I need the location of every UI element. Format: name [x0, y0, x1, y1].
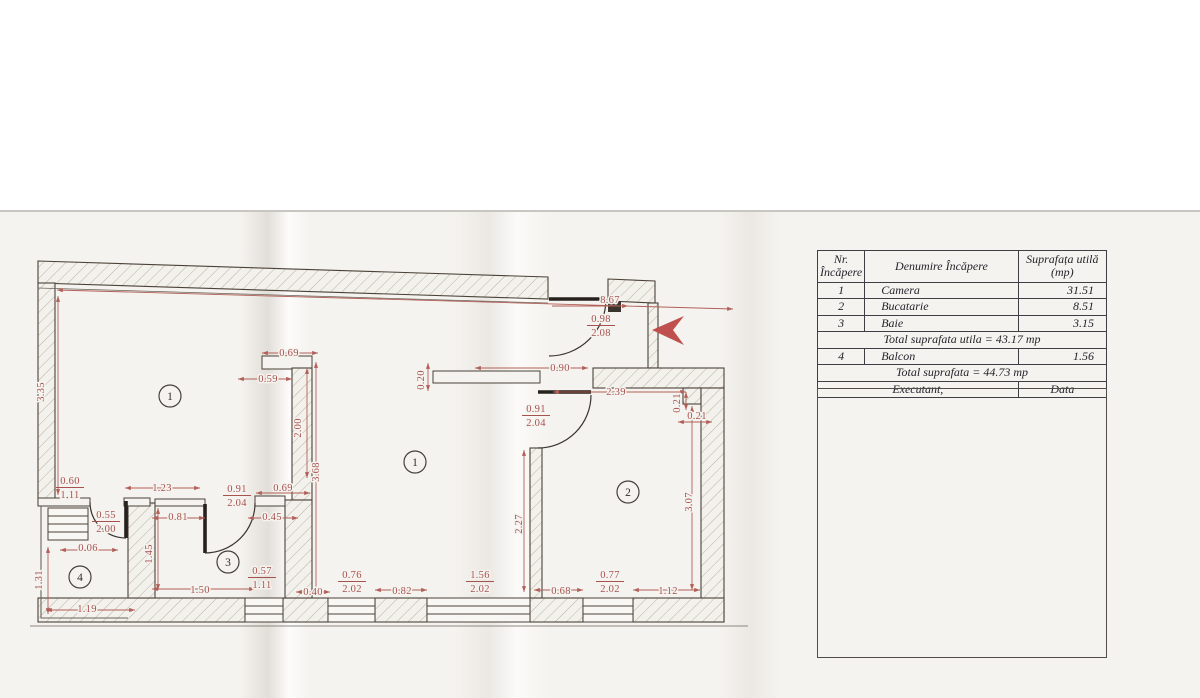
svg-text:0.77: 0.77 [600, 570, 620, 581]
svg-text:1.56: 1.56 [470, 570, 490, 581]
room-area: 8.51 [1018, 299, 1106, 315]
total-usable-row: Total suprafata utila = 43.17 mp [818, 332, 1107, 348]
total-all-label: Total suprafata = 44.73 mp [818, 365, 1107, 381]
room-nr: 2 [818, 299, 865, 315]
room-number-badge: 2 [617, 481, 639, 503]
svg-text:1.11: 1.11 [60, 490, 79, 501]
svg-text:3: 3 [225, 557, 231, 569]
room-name: Balcon [865, 348, 1018, 364]
room-number-badge: 1 [404, 451, 426, 473]
room-nr: 3 [818, 315, 865, 331]
room-name: Bucatarie [865, 299, 1018, 315]
header-name: Denumire Încăpere [865, 251, 1018, 283]
svg-text:0.55: 0.55 [96, 510, 116, 521]
svg-text:2: 2 [625, 487, 631, 499]
table-row: 2 Bucatarie 8.51 [818, 299, 1107, 315]
dimension-fraction-label: 0.912.04 [223, 484, 251, 509]
dimension-label: 2.27 [514, 514, 525, 534]
svg-text:4: 4 [77, 572, 83, 584]
dimension-fraction-label: 0.571.11 [248, 566, 276, 591]
svg-text:0.91: 0.91 [526, 404, 546, 415]
table-row: 4 Balcon 1.56 [818, 348, 1107, 364]
dimension-label: 0.82 [392, 586, 412, 597]
room-area: 31.51 [1018, 282, 1106, 298]
svg-text:0.60: 0.60 [60, 476, 80, 487]
dimension-label: 0.81 [168, 512, 188, 523]
dimension-label: 3.68 [311, 462, 322, 482]
svg-text:1: 1 [412, 457, 418, 469]
scanned-floorplan-page: 8.673.350.690.592.003.680.900.202.390.21… [0, 0, 1200, 698]
total-all-row: Total suprafata = 44.73 mp [818, 365, 1107, 381]
dimension-label: 0.69 [273, 483, 293, 494]
room-number-badge: 3 [217, 551, 239, 573]
dimension-label: 0.69 [279, 348, 299, 359]
svg-text:1.11: 1.11 [252, 580, 271, 591]
dimension-label: 0.06 [78, 543, 98, 554]
dimension-fraction-label: 1.562.02 [466, 570, 494, 595]
room-name: Baie [865, 315, 1018, 331]
dimension-label: 0.20 [416, 370, 427, 390]
dimension-label: 0.59 [258, 374, 278, 385]
svg-text:0.98: 0.98 [591, 314, 611, 325]
room-area: 3.15 [1018, 315, 1106, 331]
dimension-label: 0.68 [551, 586, 571, 597]
dimension-fraction-label: 0.772.02 [596, 570, 624, 595]
room-nr: 4 [818, 348, 865, 364]
dimension-fraction-label: 0.601.11 [56, 476, 84, 501]
dimension-fraction-label: 0.912.04 [522, 404, 550, 429]
svg-text:2.08: 2.08 [591, 328, 611, 339]
dimension-label: 2.39 [606, 387, 626, 398]
dimension-label: 2.00 [293, 418, 304, 438]
header-area: Suprafața utilă (mp) [1018, 251, 1106, 283]
header-nr: Nr. Încăpere [818, 251, 865, 283]
executant-signature-box [817, 388, 1107, 658]
dimension-label: 1.23 [152, 483, 172, 494]
dimension-label: 1.19 [77, 604, 97, 615]
dimension-label: 0.90 [550, 363, 570, 374]
dimension-fraction-label: 0.762.02 [338, 570, 366, 595]
svg-text:1: 1 [167, 391, 173, 403]
table-row: 3 Baie 3.15 [818, 315, 1107, 331]
total-usable-label: Total suprafata utila = 43.17 mp [818, 332, 1107, 348]
room-name: Camera [865, 282, 1018, 298]
svg-text:0.76: 0.76 [342, 570, 362, 581]
room-nr: 1 [818, 282, 865, 298]
dimension-label: 0.21 [687, 411, 707, 422]
table-row: 1 Camera 31.51 [818, 282, 1107, 298]
svg-text:0.57: 0.57 [252, 566, 272, 577]
dimension-label: 3.07 [684, 492, 695, 512]
room-number-badge: 1 [159, 385, 181, 407]
svg-text:2.02: 2.02 [470, 584, 490, 595]
dimension-label: 1.45 [144, 544, 155, 564]
room-area-table: Nr. Încăpere Denumire Încăpere Suprafața… [817, 250, 1107, 398]
svg-text:2.02: 2.02 [600, 584, 620, 595]
table-header-row: Nr. Încăpere Denumire Încăpere Suprafața… [818, 251, 1107, 283]
room-area: 1.56 [1018, 348, 1106, 364]
dimension-label: 0.21 [672, 393, 683, 413]
svg-text:2.04: 2.04 [526, 418, 546, 429]
svg-text:0.91: 0.91 [227, 484, 247, 495]
dimension-label: 0.40 [303, 587, 323, 598]
dimension-label: 1.50 [190, 585, 210, 596]
dimension-label: 3.35 [36, 382, 47, 402]
room-number-badge: 4 [69, 566, 91, 588]
dimension-label: 0.45 [262, 512, 282, 523]
dimension-fraction-label: 0.982.08 [587, 314, 615, 339]
svg-text:2.02: 2.02 [342, 584, 362, 595]
dimension-label: 1.12 [658, 586, 678, 597]
svg-text:2.04: 2.04 [227, 498, 247, 509]
dimension-label: 8.67 [600, 295, 620, 306]
svg-text:2.00: 2.00 [96, 524, 116, 535]
dimension-label: 1.31 [34, 570, 45, 590]
